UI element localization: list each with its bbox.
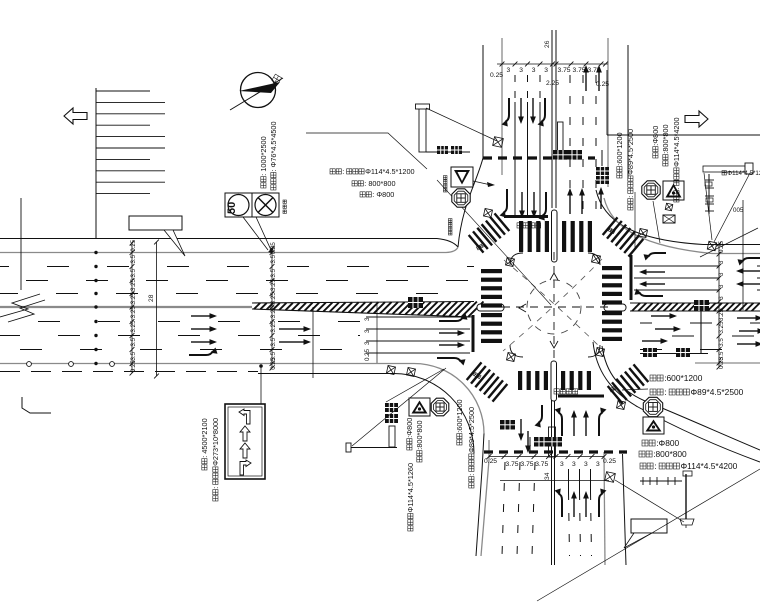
- svg-text:3.25: 3.25: [270, 320, 277, 333]
- svg-text:3.5: 3.5: [130, 268, 137, 277]
- svg-text:3.5: 3.5: [270, 268, 277, 277]
- svg-text:: Φ800: : Φ800: [372, 190, 394, 199]
- svg-text:3.75: 3.75: [535, 461, 548, 468]
- svg-text:005: 005: [733, 207, 744, 214]
- svg-text:Φ114*4.5*4200: Φ114*4.5*4200: [681, 461, 738, 471]
- svg-text:3.75: 3.75: [506, 461, 519, 468]
- svg-text:3: 3: [572, 461, 576, 468]
- svg-text:Φ89*4.5*2500: Φ89*4.5*2500: [691, 387, 744, 397]
- svg-text:28: 28: [148, 294, 155, 302]
- svg-text::800*800: :800*800: [661, 124, 670, 153]
- svg-text:3.25: 3.25: [130, 320, 137, 333]
- svg-text:: 800*800: : 800*800: [364, 179, 395, 188]
- svg-text:0.25: 0.25: [130, 360, 137, 373]
- svg-text:3.25: 3.25: [130, 292, 137, 305]
- svg-text:3.5: 3.5: [130, 351, 137, 360]
- svg-text:3.5: 3.5: [270, 254, 277, 263]
- svg-text:3.75: 3.75: [521, 461, 534, 468]
- svg-text:0.25: 0.25: [490, 72, 503, 79]
- svg-text:3: 3: [364, 341, 371, 345]
- svg-text::Φ800: :Φ800: [651, 126, 660, 146]
- svg-text:3: 3: [560, 461, 564, 468]
- svg-text:26: 26: [544, 40, 551, 48]
- svg-text:3.25: 3.25: [718, 321, 725, 334]
- svg-text:3.25: 3.25: [130, 306, 137, 319]
- svg-text::600*1200: :600*1200: [615, 132, 624, 165]
- svg-text::: :: [654, 461, 656, 471]
- svg-text:Φ89*4.5*2500: Φ89*4.5*2500: [626, 129, 635, 175]
- svg-text:3: 3: [718, 272, 725, 276]
- svg-text::: :: [342, 167, 344, 176]
- svg-text::: :: [664, 387, 666, 397]
- svg-text:Φ114*4.5*1260: Φ114*4.5*1260: [406, 463, 415, 513]
- svg-text:0.25: 0.25: [718, 356, 725, 369]
- svg-text:50: 50: [226, 202, 238, 214]
- svg-text:3.25: 3.25: [130, 278, 137, 291]
- svg-text:0.25: 0.25: [130, 239, 137, 252]
- svg-text:3: 3: [596, 461, 600, 468]
- svg-text::600*1200: :600*1200: [664, 373, 703, 383]
- svg-text:0.25: 0.25: [270, 242, 277, 255]
- svg-text::: :: [626, 196, 635, 198]
- svg-text::800*800: :800*800: [653, 449, 687, 459]
- svg-text::600*1200: :600*1200: [455, 399, 464, 432]
- svg-text:0.25: 0.25: [603, 458, 616, 465]
- svg-text:: Φ76*4.5*4500: : Φ76*4.5*4500: [269, 121, 278, 171]
- svg-text:3.5: 3.5: [718, 338, 725, 347]
- svg-text:34: 34: [544, 472, 551, 480]
- svg-text:0.25: 0.25: [484, 458, 497, 465]
- svg-text:3.25: 3.25: [270, 278, 277, 291]
- svg-text:3.5: 3.5: [130, 254, 137, 263]
- svg-text:3.5: 3.5: [130, 337, 137, 346]
- svg-text:0.25: 0.25: [718, 240, 725, 253]
- svg-text:3: 3: [364, 317, 371, 321]
- svg-text:3: 3: [519, 67, 523, 74]
- svg-text::: :: [211, 487, 220, 489]
- svg-text:3.75: 3.75: [588, 67, 601, 74]
- svg-text::Φ800: :Φ800: [405, 418, 414, 438]
- svg-text:3.25: 3.25: [270, 292, 277, 305]
- svg-text:0.25: 0.25: [270, 357, 277, 370]
- svg-text:Φ89*4.5*2500: Φ89*4.5*2500: [467, 407, 476, 453]
- svg-text:3.5: 3.5: [270, 337, 277, 346]
- svg-text:Φ114*4.5*1200: Φ114*4.5*1200: [365, 167, 415, 176]
- svg-text:3.25: 3.25: [270, 306, 277, 319]
- svg-text:Φ114*4.5*4200: Φ114*4.5*4200: [672, 117, 681, 167]
- svg-text::: :: [672, 188, 681, 190]
- svg-text:3: 3: [718, 284, 725, 288]
- svg-text:3.25: 3.25: [718, 308, 725, 321]
- svg-text:3: 3: [532, 67, 536, 74]
- svg-text:3: 3: [718, 296, 725, 300]
- svg-text:Φ114*4.5*1200: Φ114*4.5*1200: [727, 170, 760, 177]
- svg-text:3: 3: [507, 67, 511, 74]
- svg-text:3.75: 3.75: [558, 67, 571, 74]
- svg-text::800*800: :800*800: [415, 420, 424, 449]
- svg-text:3: 3: [718, 260, 725, 264]
- svg-text::: :: [467, 474, 476, 476]
- svg-text:0.25: 0.25: [364, 348, 371, 361]
- svg-text:3.75: 3.75: [573, 67, 586, 74]
- svg-text:2.25: 2.25: [546, 80, 559, 87]
- svg-text:Φ273*10*8000: Φ273*10*8000: [211, 418, 220, 466]
- svg-text:: 1000*2500: : 1000*2500: [259, 136, 268, 175]
- svg-text:3: 3: [544, 67, 548, 74]
- svg-text:: 4500*2100: : 4500*2100: [200, 418, 209, 457]
- svg-text:3: 3: [584, 461, 588, 468]
- svg-text::Φ800: :Φ800: [656, 438, 679, 448]
- svg-text:3: 3: [364, 329, 371, 333]
